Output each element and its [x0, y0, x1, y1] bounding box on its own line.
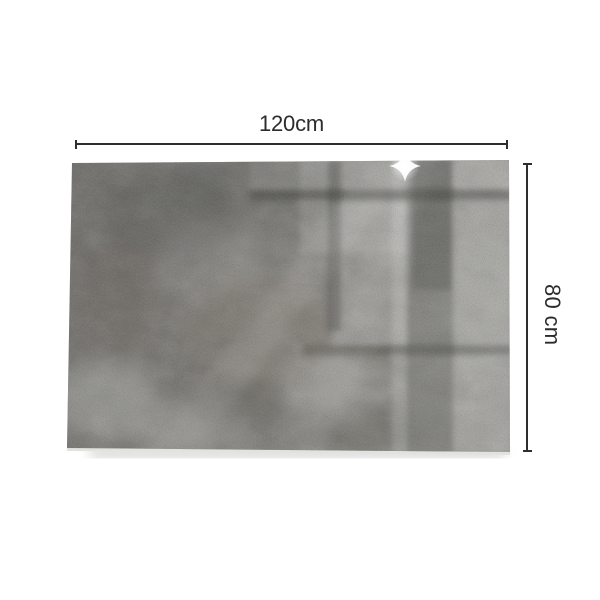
width-dimension-label: 120cm: [75, 113, 508, 135]
height-line-top-tick: [523, 163, 532, 165]
height-dimension-label: 80 cm: [540, 284, 564, 345]
height-dimension-line: [526, 163, 528, 452]
glass-panel-photo: [0, 0, 600, 600]
width-line-left-tick: [75, 140, 77, 149]
product-dimension-image: 120cm 80 cm: [0, 0, 600, 600]
panel-texture: [50, 150, 520, 460]
height-line-bottom-tick: [523, 450, 532, 452]
width-line-right-tick: [506, 140, 508, 149]
width-dimension-line: [75, 143, 508, 145]
